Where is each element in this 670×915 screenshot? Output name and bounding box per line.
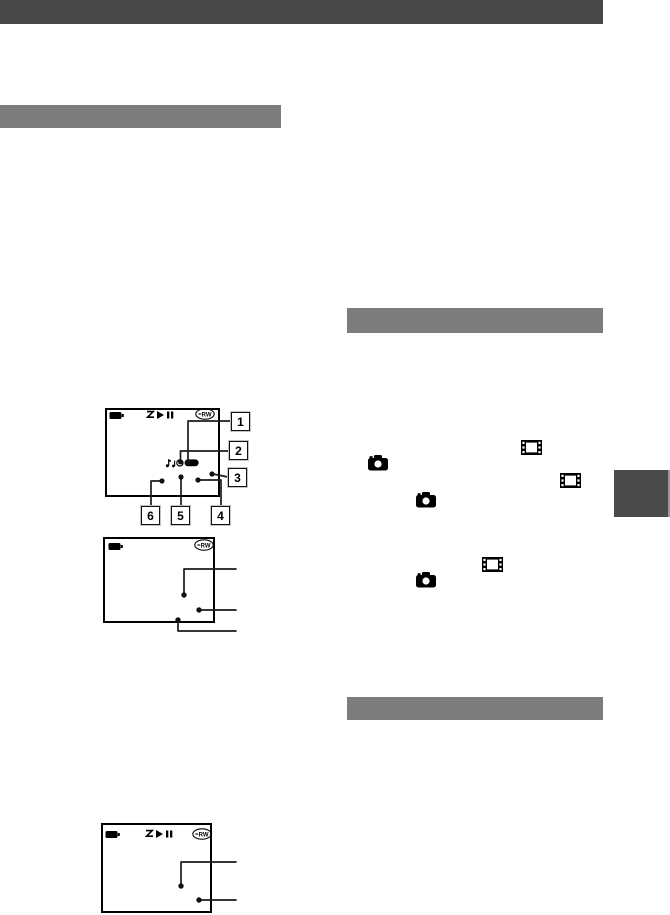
callout-number-6: 6 [141, 506, 160, 525]
dvd-rw-logo: RW [194, 539, 214, 551]
play-pause-icon [156, 830, 173, 838]
volume-bar-icon [176, 458, 199, 468]
still-camera-icon [416, 491, 436, 508]
dvd-rw-logo: RW [195, 408, 215, 420]
section-heading-bar-right-1 [347, 308, 603, 333]
play-pause-icon [157, 411, 174, 419]
z-indicator-icon [146, 410, 155, 419]
movie-film-icon [521, 440, 542, 455]
battery-icon [109, 411, 124, 420]
callout-number-4: 4 [211, 506, 230, 525]
playback-screen-figure-1 [105, 408, 220, 497]
callout-number-1: 1 [231, 412, 250, 431]
page-header-bar [0, 0, 603, 24]
section-heading-bar-left [0, 105, 281, 128]
movie-film-icon [482, 557, 503, 572]
battery-icon [108, 542, 123, 551]
callout-number-2: 2 [229, 441, 248, 460]
still-camera-icon [368, 454, 388, 471]
callout-number-5: 5 [171, 506, 190, 525]
section-heading-bar-right-2 [347, 697, 603, 720]
manual-page: RW RW RW [0, 0, 670, 915]
battery-icon [105, 830, 120, 839]
movie-film-icon [560, 473, 581, 488]
chapter-side-tab [614, 470, 668, 517]
callout-leader-overlay [0, 0, 670, 915]
svg-text:RW: RW [199, 832, 209, 838]
svg-text:RW: RW [202, 412, 212, 418]
still-camera-icon [416, 571, 436, 588]
callout-number-3: 3 [228, 468, 247, 487]
dvd-rw-logo: RW [192, 828, 212, 840]
svg-text:RW: RW [201, 543, 211, 549]
z-indicator-icon [145, 829, 154, 838]
